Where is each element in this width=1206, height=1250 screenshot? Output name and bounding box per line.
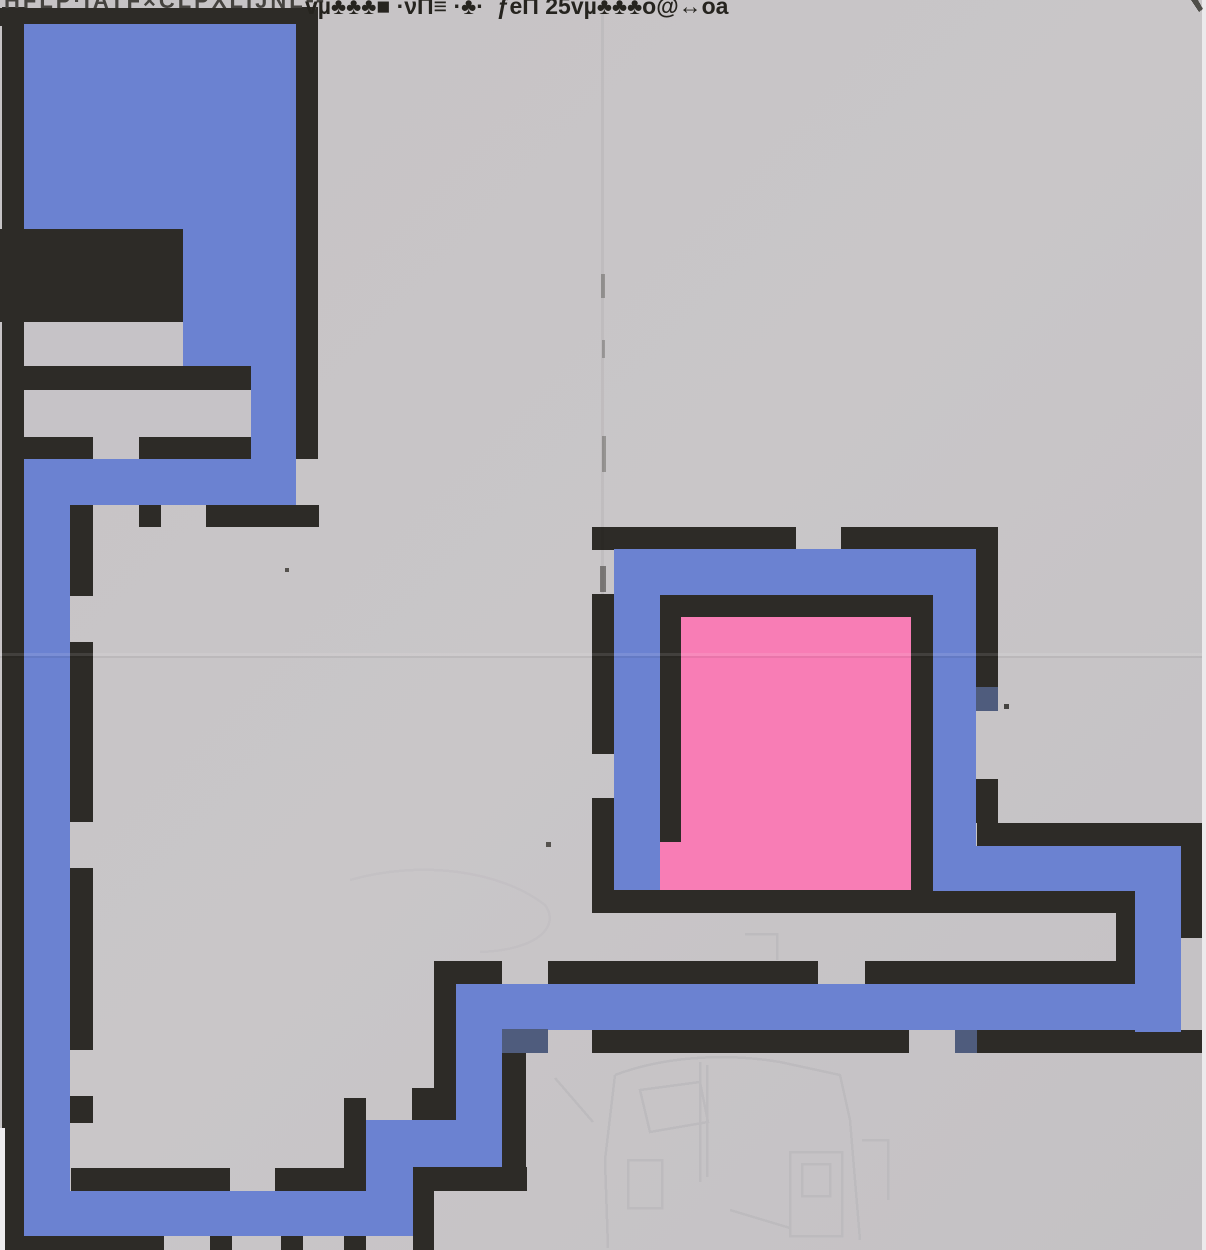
svg-text:vµ♣♣♣■ ·νΠ≡ ·♣· ƒeΠ 25vµ♣♣♣o@: vµ♣♣♣■ ·νΠ≡ ·♣· ƒeΠ 25vµ♣♣♣o@↔oa xyxy=(305,0,729,19)
svg-text:HFLP·IATF×CLPXLIJNL⊹: HFLP·IATF×CLPXLIJNL⊹ xyxy=(4,0,327,13)
